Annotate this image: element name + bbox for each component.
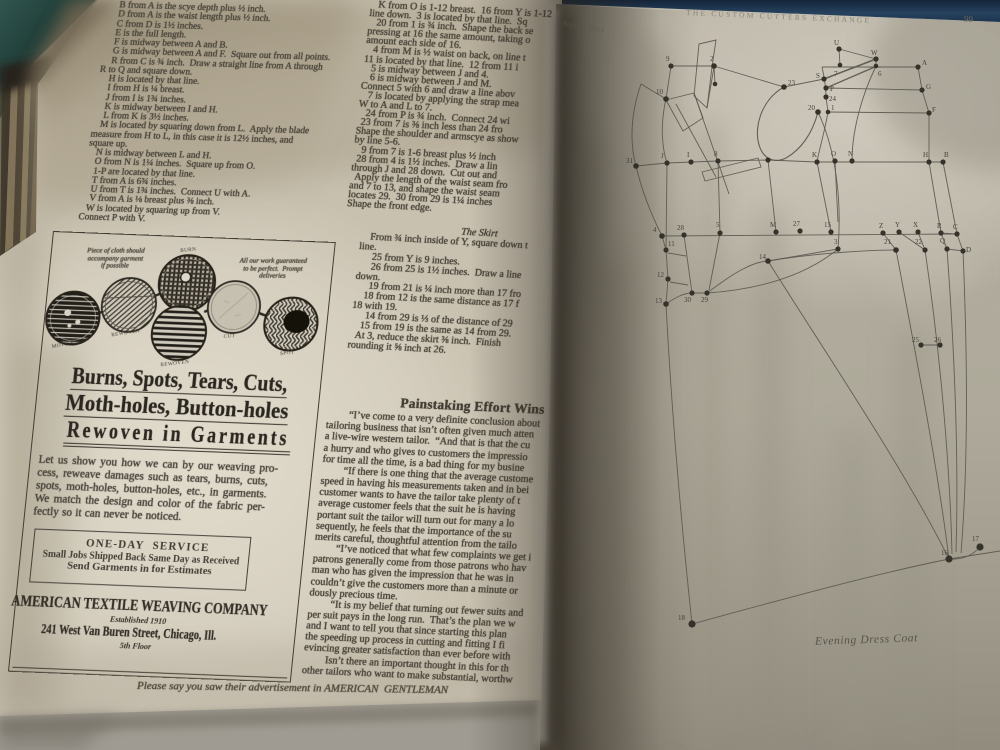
svg-text:8: 8 (714, 150, 718, 158)
svg-text:H: H (923, 151, 928, 159)
svg-text:30: 30 (684, 296, 692, 304)
svg-text:9: 9 (666, 55, 670, 63)
svg-text:N: N (848, 150, 853, 158)
svg-text:6: 6 (878, 70, 882, 78)
svg-text:X: X (913, 221, 918, 229)
svg-text:7: 7 (834, 70, 838, 78)
svg-text:16: 16 (941, 549, 949, 557)
svg-text:U: U (834, 39, 839, 47)
svg-text:22: 22 (915, 238, 923, 246)
svg-text:2: 2 (710, 55, 714, 63)
svg-text:15: 15 (824, 221, 832, 229)
svg-text:5: 5 (716, 221, 720, 229)
svg-text:24: 24 (829, 95, 837, 103)
svg-text:Y: Y (895, 221, 900, 229)
svg-text:29: 29 (701, 296, 709, 304)
svg-text:A: A (922, 59, 927, 67)
svg-text:M: M (770, 221, 777, 229)
svg-text:17: 17 (972, 535, 980, 543)
svg-text:21: 21 (884, 238, 892, 246)
svg-text:P: P (830, 85, 834, 93)
svg-text:20: 20 (808, 104, 816, 112)
svg-text:W: W (871, 49, 878, 57)
svg-text:11: 11 (668, 240, 675, 248)
svg-text:28: 28 (677, 224, 685, 232)
svg-text:23: 23 (788, 79, 796, 87)
svg-text:14: 14 (759, 253, 767, 261)
svg-text:26: 26 (934, 336, 942, 344)
svg-text:C: C (953, 223, 958, 231)
svg-text:27: 27 (793, 220, 801, 228)
svg-text:G: G (926, 83, 931, 91)
svg-text:18: 18 (678, 614, 686, 622)
svg-text:D: D (966, 246, 971, 254)
svg-text:K: K (812, 151, 817, 159)
svg-text:B: B (944, 151, 949, 159)
svg-text:O: O (831, 150, 836, 158)
svg-text:Q: Q (940, 237, 945, 245)
svg-text:I: I (687, 151, 690, 159)
svg-text:3: 3 (834, 238, 838, 246)
svg-text:Z: Z (879, 222, 883, 230)
svg-text:J: J (661, 152, 664, 160)
svg-text:1: 1 (831, 104, 835, 112)
svg-text:S: S (816, 72, 820, 80)
svg-text:25: 25 (912, 336, 920, 344)
svg-text:R: R (937, 222, 942, 230)
svg-text:F: F (932, 106, 936, 114)
